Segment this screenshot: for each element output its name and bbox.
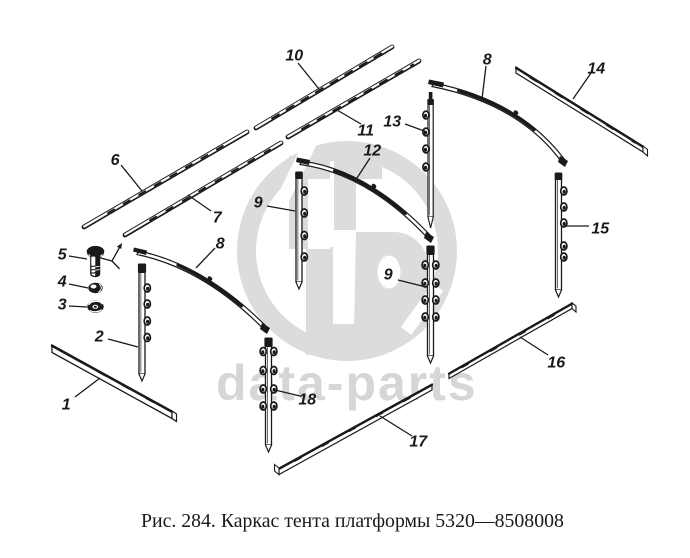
- svg-text:15: 15: [591, 221, 610, 238]
- svg-text:5: 5: [58, 247, 68, 264]
- svg-text:16: 16: [547, 355, 565, 372]
- svg-text:17: 17: [409, 434, 428, 451]
- svg-text:13: 13: [383, 114, 401, 131]
- svg-text:3: 3: [58, 297, 67, 314]
- svg-text:2: 2: [94, 329, 104, 346]
- svg-text:14: 14: [587, 61, 605, 78]
- svg-text:Рис. 284. Каркас тента платфор: Рис. 284. Каркас тента платформы 5320—85…: [141, 510, 564, 532]
- svg-text:9: 9: [384, 267, 393, 284]
- svg-text:9: 9: [254, 195, 263, 212]
- svg-text:4: 4: [57, 274, 67, 291]
- svg-text:18: 18: [298, 392, 316, 409]
- svg-text:8: 8: [216, 236, 225, 253]
- svg-text:8: 8: [483, 52, 492, 69]
- svg-text:12: 12: [363, 143, 381, 160]
- svg-text:11: 11: [357, 123, 374, 140]
- svg-text:7: 7: [213, 210, 223, 227]
- svg-text:1: 1: [62, 397, 71, 414]
- svg-text:10: 10: [285, 48, 303, 65]
- svg-text:6: 6: [111, 152, 120, 169]
